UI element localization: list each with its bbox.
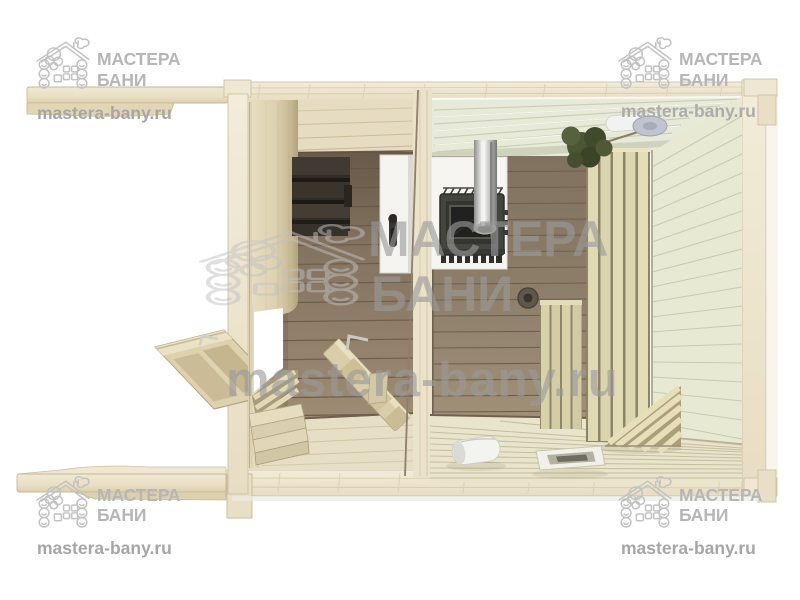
svg-text:МАСТЕРА: МАСТЕРА — [679, 485, 763, 505]
svg-text:БАНИ: БАНИ — [371, 266, 513, 322]
svg-text:mastera-bany.ru: mastera-bany.ru — [621, 101, 756, 121]
svg-text:БАНИ: БАНИ — [97, 505, 146, 525]
svg-text:mastera-bany.ru: mastera-bany.ru — [37, 103, 172, 123]
svg-text:МАСТЕРА: МАСТЕРА — [97, 49, 181, 69]
svg-text:МАСТЕРА: МАСТЕРА — [368, 211, 608, 267]
svg-text:mastera-bany.ru: mastera-bany.ru — [621, 538, 756, 558]
svg-text:МАСТЕРА: МАСТЕРА — [679, 49, 763, 69]
svg-text:БАНИ: БАНИ — [679, 505, 728, 525]
svg-text:БАНИ: БАНИ — [679, 70, 728, 90]
svg-text:mastera-bany.ru: mastera-bany.ru — [226, 353, 619, 407]
svg-text:mastera-bany.ru: mastera-bany.ru — [37, 538, 172, 558]
svg-text:БАНИ: БАНИ — [97, 70, 146, 90]
svg-text:МАСТЕРА: МАСТЕРА — [97, 485, 181, 505]
